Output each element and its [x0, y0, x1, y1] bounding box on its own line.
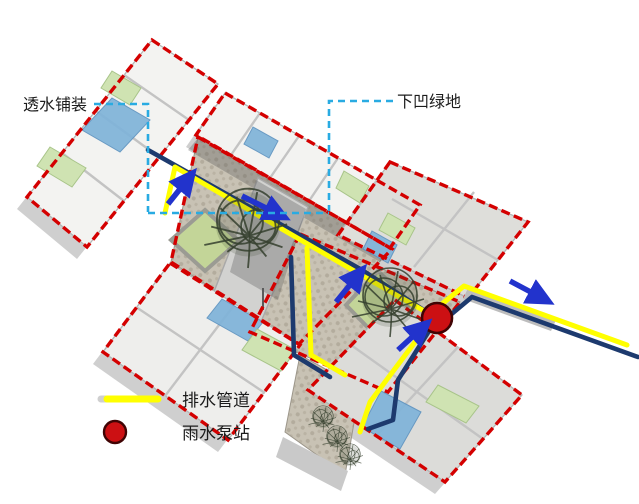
- pump-station-marker: [422, 303, 452, 333]
- permeable-paving-label: 透水铺装: [23, 96, 87, 114]
- sunken-green-label: 下凹绿地: [397, 93, 461, 111]
- legend-label-pump-station: 雨水泵站: [182, 424, 250, 443]
- legend-label-drain-pipe: 排水管道: [182, 391, 250, 410]
- diagram-canvas: 透水铺装 下凹绿地 排水管道 雨水泵站: [0, 0, 639, 504]
- pump-station-circle-swatch: [104, 421, 126, 443]
- site-drainage-diagram: 透水铺装 下凹绿地 排水管道 雨水泵站: [0, 0, 639, 504]
